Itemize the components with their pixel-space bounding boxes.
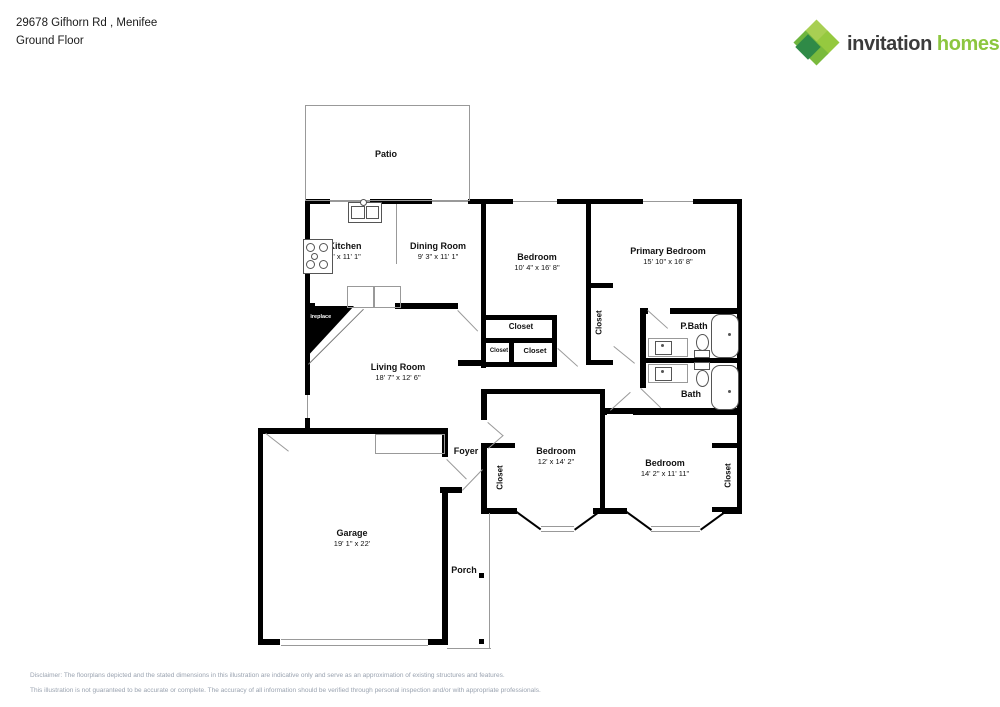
bath-tub (711, 365, 739, 410)
wall (479, 639, 484, 644)
floorplan-drawing: Fireplace Patio Kitchen 9' x 11' 1" Dini… (0, 0, 1000, 707)
wall (442, 487, 448, 645)
window (513, 199, 557, 204)
wall (481, 443, 515, 448)
floorplan-page: 29678 Gifhorn Rd , Menifee Ground Floor … (0, 0, 1000, 707)
garage-storage (375, 434, 445, 454)
porch-line (447, 648, 491, 649)
bath-sink (655, 367, 672, 381)
fireplace-label: Fireplace (307, 314, 349, 320)
counter-line (396, 204, 397, 264)
pbath-tub (711, 314, 739, 358)
wall (258, 639, 280, 645)
disclaimer-line-1: Disclaimer: The floorplans depicted and … (30, 668, 541, 683)
wall (481, 315, 557, 320)
wall (693, 199, 742, 204)
tub-drain (728, 390, 731, 393)
wall (712, 443, 742, 448)
bay-wall (626, 511, 652, 531)
door-swing (640, 388, 661, 408)
patio-outline (305, 105, 470, 201)
stove-burner (306, 243, 315, 252)
wall (586, 283, 591, 365)
wall (481, 338, 557, 343)
stove-burner (311, 253, 318, 260)
wall (479, 573, 484, 578)
wall (481, 389, 487, 420)
sink-tap (661, 370, 664, 373)
pbath-toilet-bowl (696, 334, 709, 351)
wall (605, 508, 627, 514)
door-swing (265, 433, 288, 452)
door-swing (557, 348, 578, 367)
door-swing (613, 346, 635, 364)
pbath-toilet-tank (694, 350, 710, 358)
bay-wall (700, 511, 726, 531)
disclaimer: Disclaimer: The floorplans depicted and … (30, 668, 541, 698)
door-swing (647, 310, 668, 329)
bay-window (541, 526, 574, 532)
door-swing (462, 469, 483, 491)
kitchen-counter (373, 286, 401, 308)
door-swing (446, 459, 467, 480)
wall (737, 199, 742, 513)
tub-drain (728, 333, 731, 336)
closet-label-foyer: Closet (496, 453, 505, 503)
room-label-living: Living Room 18' 7" x 12' 6" (338, 362, 458, 383)
bath-toilet-bowl (696, 370, 709, 387)
porch-line (489, 513, 490, 649)
wall (600, 389, 605, 514)
bath-toilet-tank (694, 362, 710, 370)
wall (468, 199, 513, 204)
room-label-bedroom-top: Bedroom 10' 4" x 16' 8" (477, 252, 597, 273)
wall (305, 309, 310, 395)
closet-label-primary: Closet (595, 298, 604, 348)
wall (481, 508, 517, 514)
window (305, 395, 310, 418)
disclaimer-line-2: This illustration is not guaranteed to b… (30, 683, 541, 698)
sink-basin (351, 206, 365, 219)
wall (633, 410, 742, 415)
closet-label-bed2: Closet (724, 451, 733, 501)
wall (586, 283, 613, 288)
room-label-primary-bedroom: Primary Bedroom 15' 10" x 16' 8" (608, 246, 728, 267)
wall (395, 303, 458, 309)
wall (440, 487, 462, 493)
bay-window (651, 526, 700, 532)
stove-burner (319, 243, 328, 252)
wall (458, 360, 482, 366)
room-label-garage: Garage 19' 1" x 22' (292, 528, 412, 549)
kitchen-counter (347, 286, 375, 308)
door-swing (487, 422, 503, 436)
room-label-bedroom-left: Bedroom 12' x 14' 2" (496, 446, 616, 467)
garage-door (281, 639, 428, 646)
bay-wall (574, 511, 599, 530)
wall (481, 362, 557, 367)
stove-burner (319, 260, 328, 269)
wall (481, 448, 487, 513)
window (643, 199, 693, 204)
room-label-bedroom-right: Bedroom 14' 2" x 11' 11" (605, 458, 725, 479)
sink-basin (366, 206, 379, 219)
sink-tap (661, 344, 664, 347)
wall (640, 308, 646, 388)
stove-burner (306, 260, 315, 269)
door-swing (457, 310, 478, 332)
closet-label-a: Closet (491, 322, 551, 331)
wall (258, 428, 263, 645)
sink-faucet (360, 199, 367, 206)
wall (481, 389, 605, 394)
wall (586, 360, 613, 365)
wall (557, 199, 643, 204)
bay-wall (516, 511, 541, 530)
wall (603, 410, 607, 415)
pbath-sink (655, 341, 672, 355)
wall (586, 199, 591, 283)
